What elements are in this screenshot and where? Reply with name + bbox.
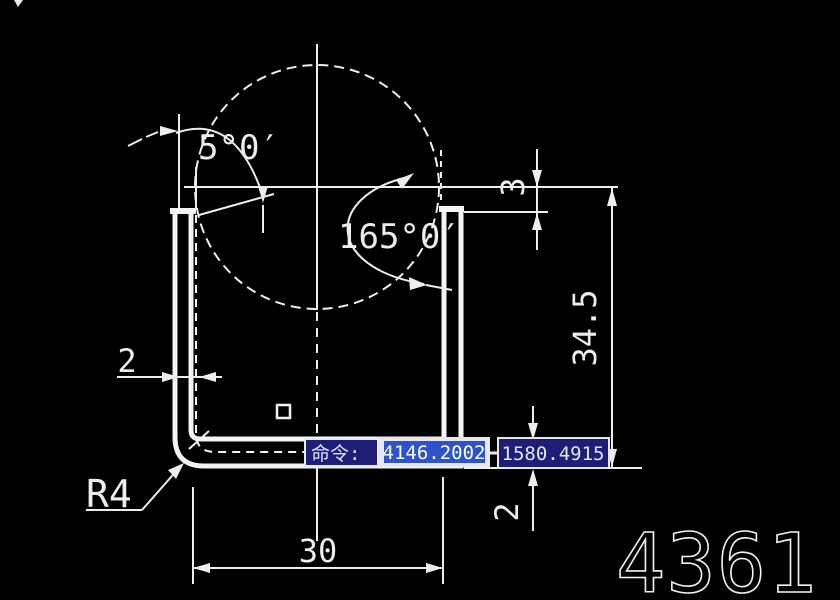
drawing-number: 4361	[616, 517, 817, 600]
x-coordinate-value[interactable]: 4146.2002	[383, 442, 486, 464]
cad-drawing-canvas[interactable]: 5°0′ 165°0′ 3 34.5 2 2	[0, 0, 840, 600]
dim2br-value: 2	[488, 502, 526, 521]
angle-right-value: 165°0′	[338, 217, 461, 257]
grip-point-marker	[277, 405, 290, 418]
dim2l-value: 2	[117, 342, 136, 380]
cad-viewport[interactable]: 5°0′ 165°0′ 3 34.5 2 2	[0, 0, 840, 600]
y-coordinate-value[interactable]: 1580.4915	[502, 443, 605, 465]
dim3-value: 3	[494, 177, 532, 196]
command-prompt-label: 命令:	[311, 443, 360, 465]
angle-left-value: 5°0′	[198, 128, 280, 168]
dim345-value: 34.5	[566, 289, 604, 366]
dim30-value: 30	[299, 532, 338, 570]
command-overlay: 命令: 4146.2002 1580.4915	[305, 437, 609, 468]
